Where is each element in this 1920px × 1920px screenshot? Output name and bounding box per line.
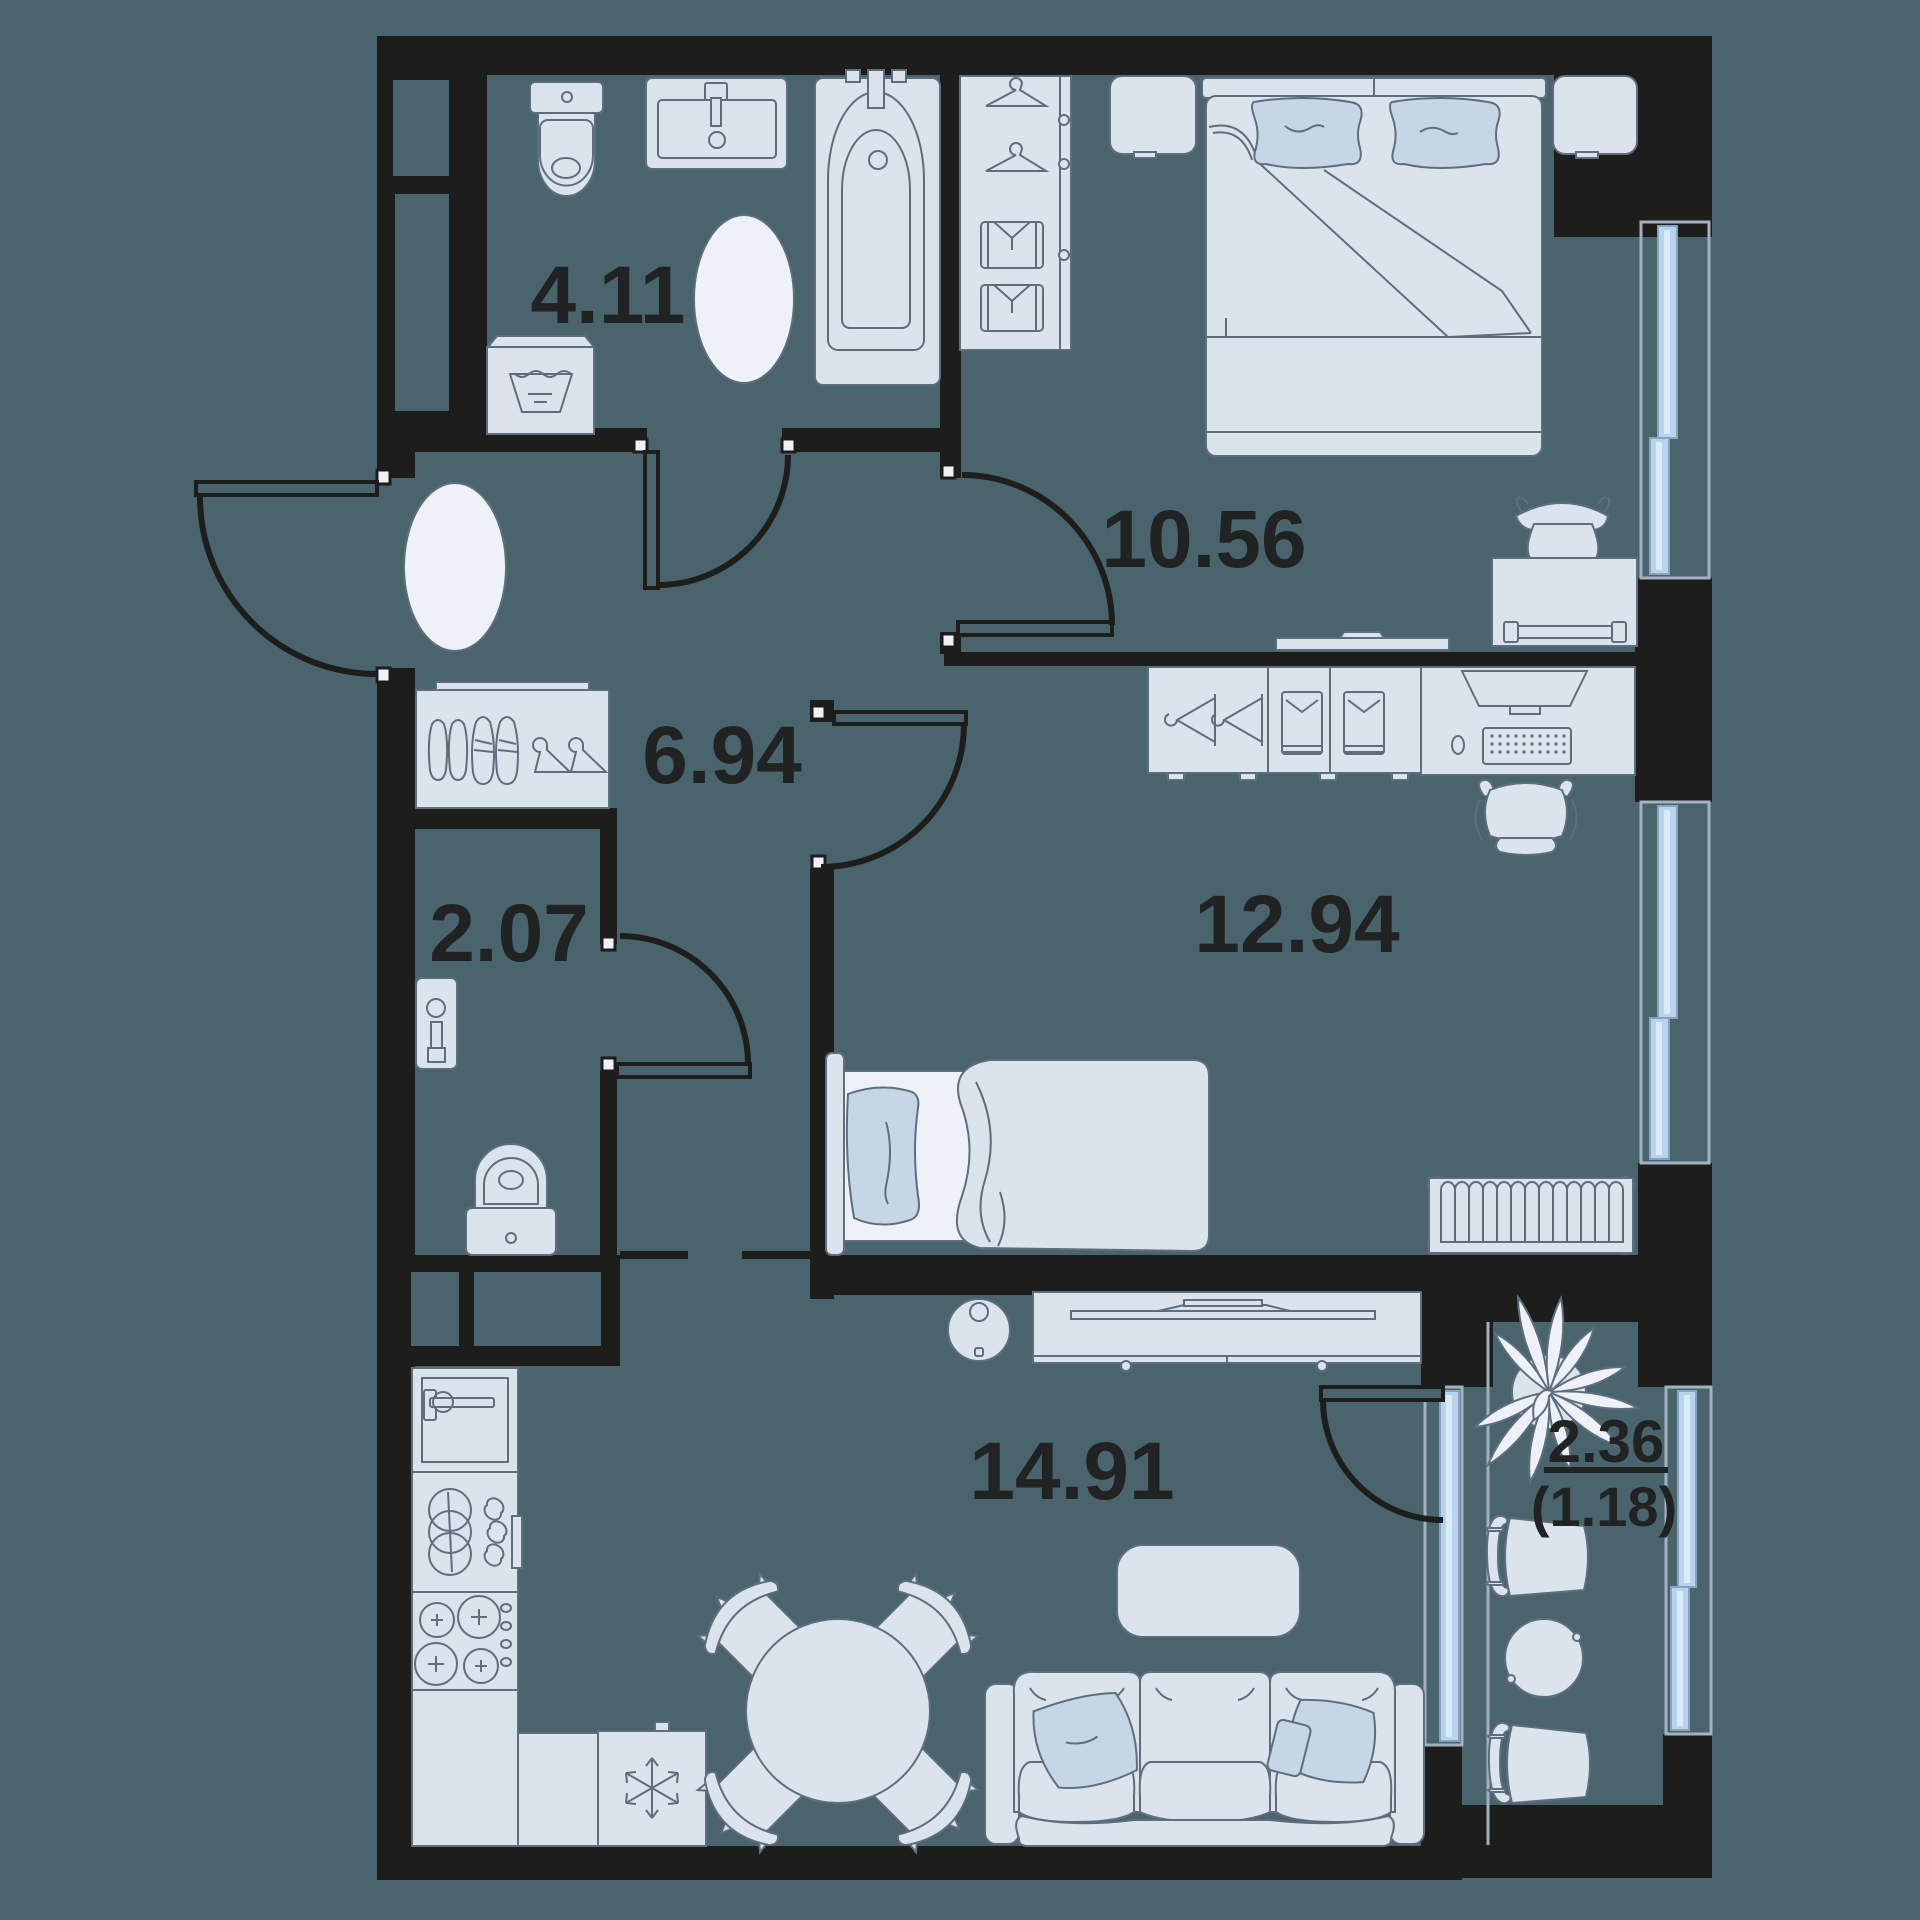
svg-text:6.94: 6.94 bbox=[642, 710, 802, 801]
svg-text:12.94: 12.94 bbox=[1194, 879, 1400, 970]
svg-text:2.36: 2.36 bbox=[1548, 1408, 1665, 1475]
svg-text:14.91: 14.91 bbox=[969, 1426, 1174, 1517]
svg-text:4.11: 4.11 bbox=[530, 250, 685, 341]
svg-text:10.56: 10.56 bbox=[1101, 494, 1306, 585]
svg-text:2.07: 2.07 bbox=[429, 888, 589, 979]
svg-text:(1.18): (1.18) bbox=[1531, 1475, 1677, 1538]
